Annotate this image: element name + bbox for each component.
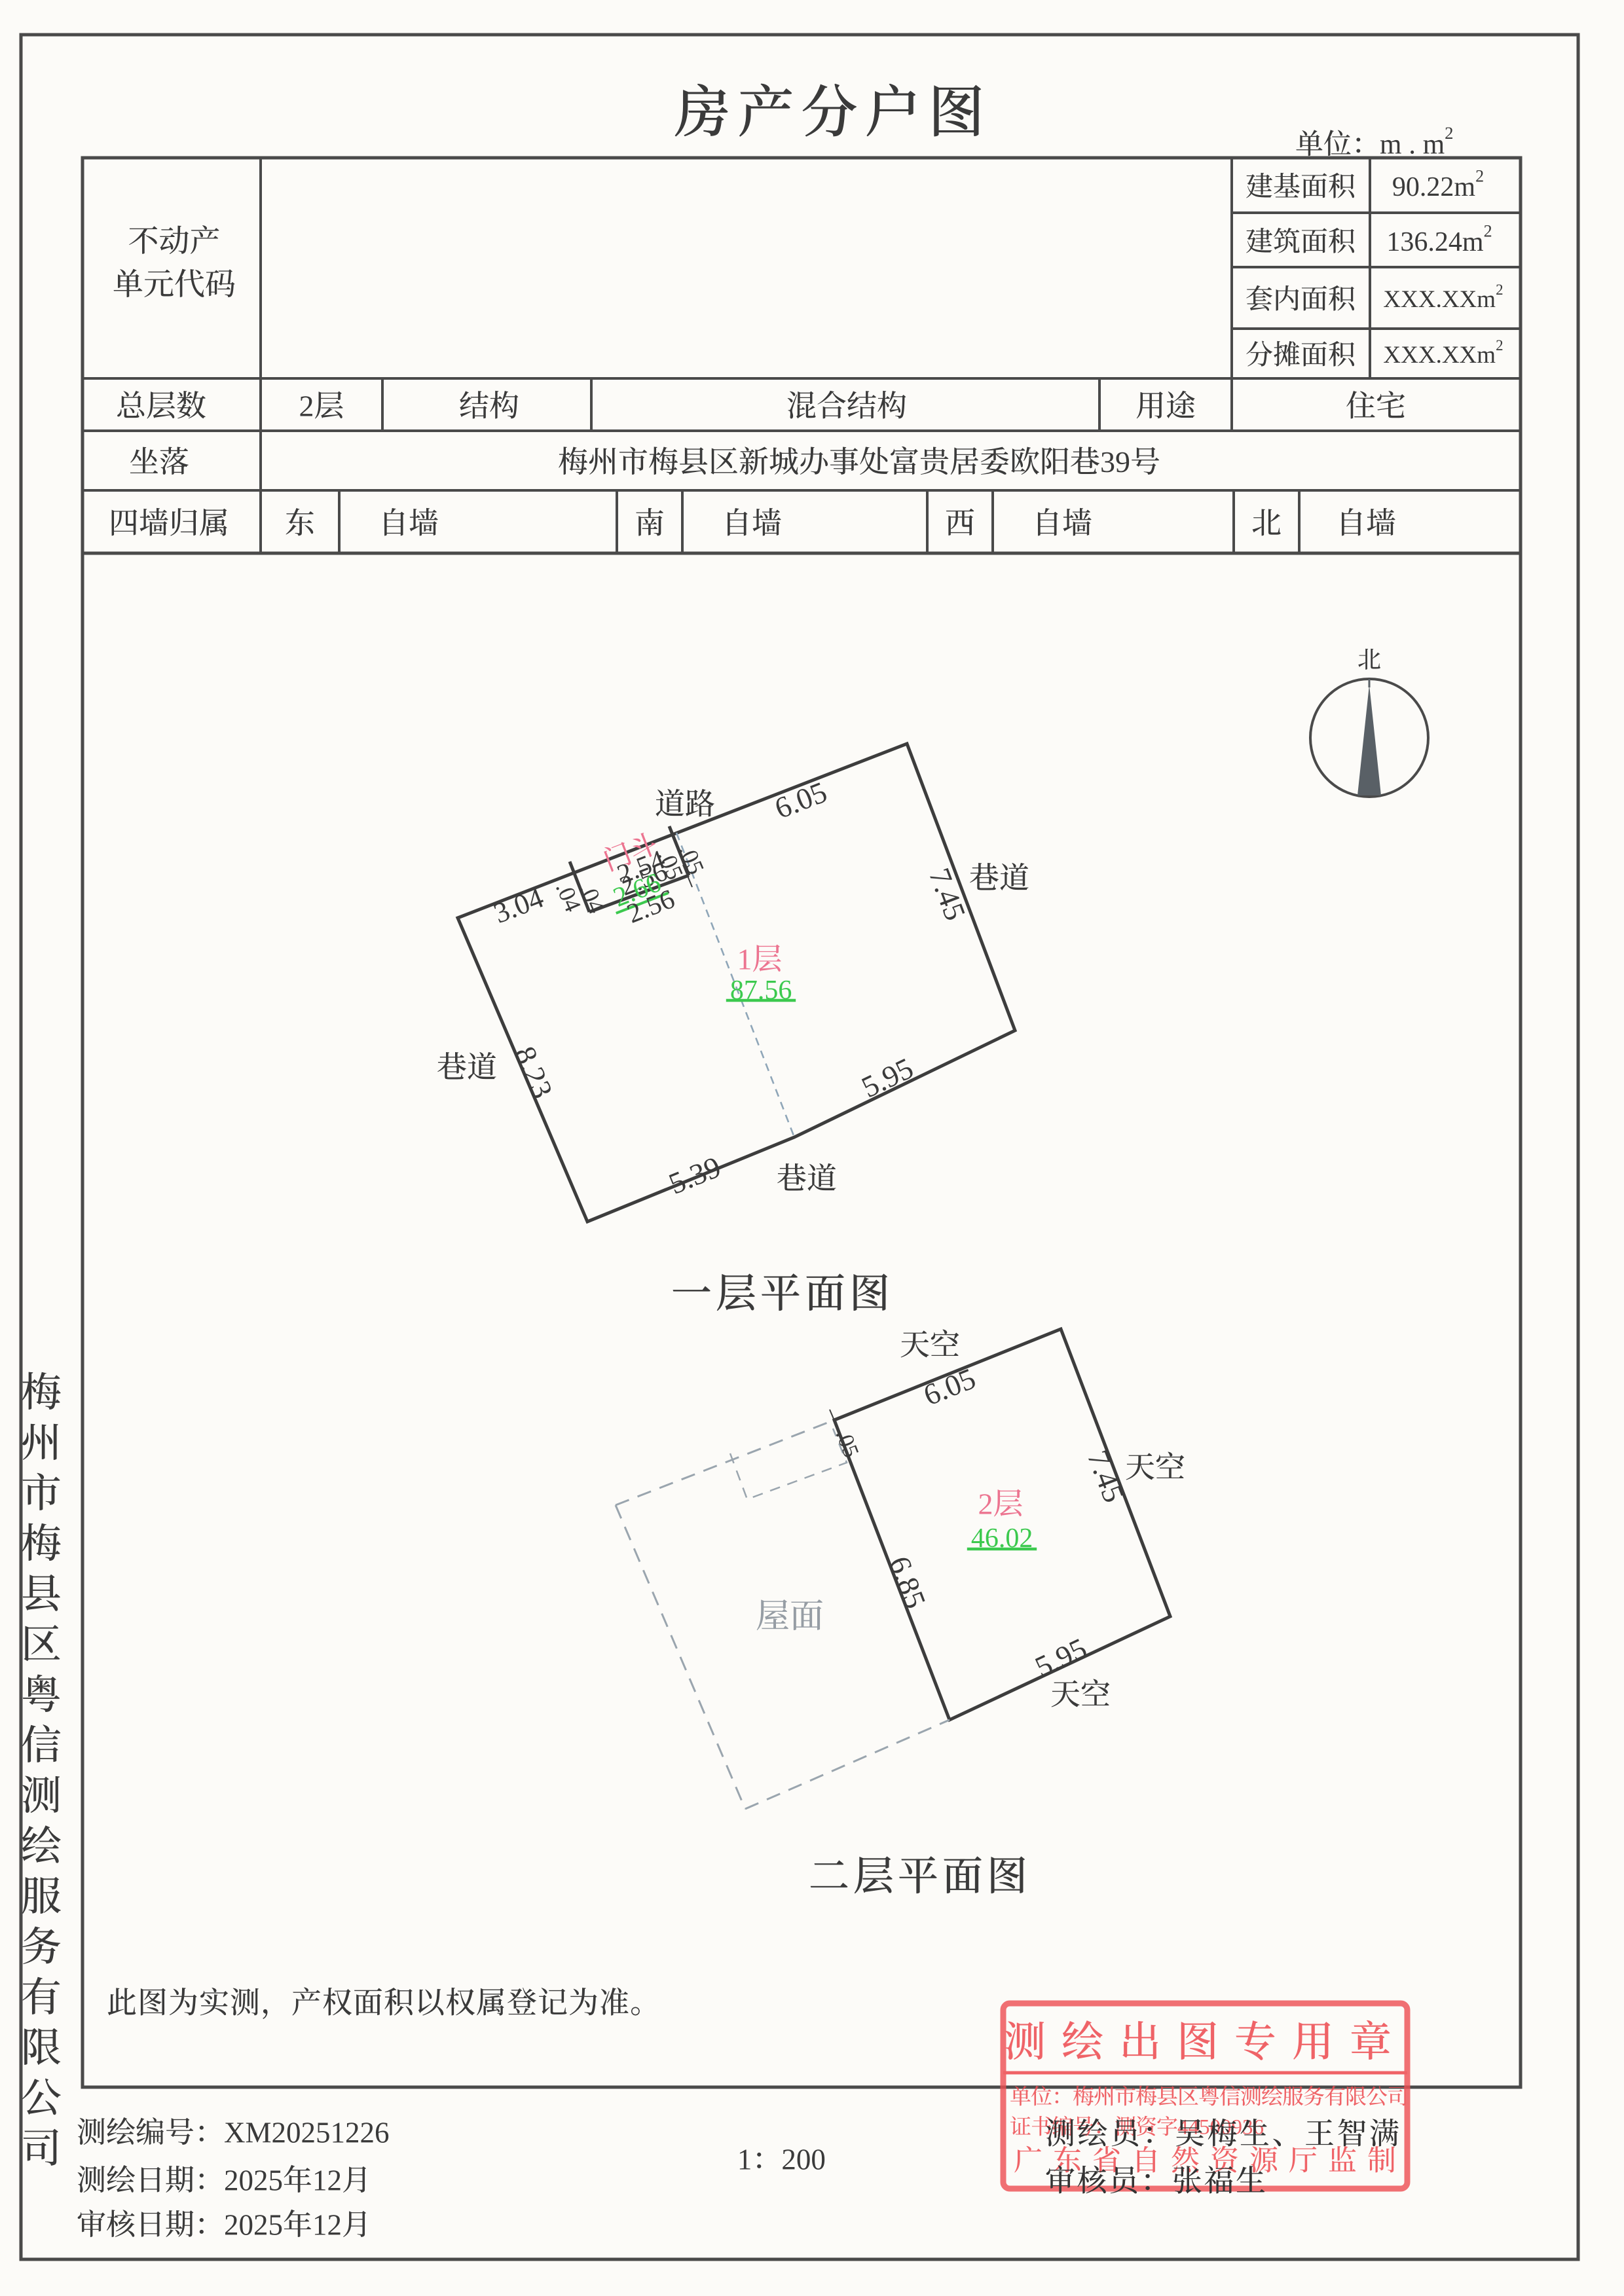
svg-text:2: 2 (978, 1487, 993, 1521)
svg-text:12: 12 (312, 2208, 342, 2241)
svg-text:1: 1 (737, 2143, 752, 2176)
svg-text:XM20251226: XM20251226 (224, 2116, 390, 2149)
svg-text:2025: 2025 (224, 2164, 283, 2196)
svg-text:m . m: m . m (1380, 130, 1445, 160)
svg-text:2: 2 (1484, 221, 1492, 240)
svg-text:2025: 2025 (224, 2208, 283, 2241)
svg-text:2: 2 (1475, 166, 1484, 185)
svg-text:1: 1 (737, 943, 752, 976)
svg-text:XXX.XXm: XXX.XXm (1383, 342, 1496, 369)
svg-text:2: 2 (1496, 282, 1503, 298)
svg-text:39: 39 (1100, 445, 1130, 479)
svg-text:2: 2 (299, 390, 314, 423)
svg-text:12: 12 (312, 2164, 342, 2196)
svg-text:90.22m: 90.22m (1392, 172, 1476, 202)
svg-text:2: 2 (1445, 123, 1453, 143)
svg-text:2: 2 (1496, 337, 1503, 354)
svg-text:XXX.XXm: XXX.XXm (1383, 286, 1496, 313)
svg-text:136.24m: 136.24m (1386, 227, 1484, 257)
svg-text:200: 200 (781, 2143, 826, 2176)
